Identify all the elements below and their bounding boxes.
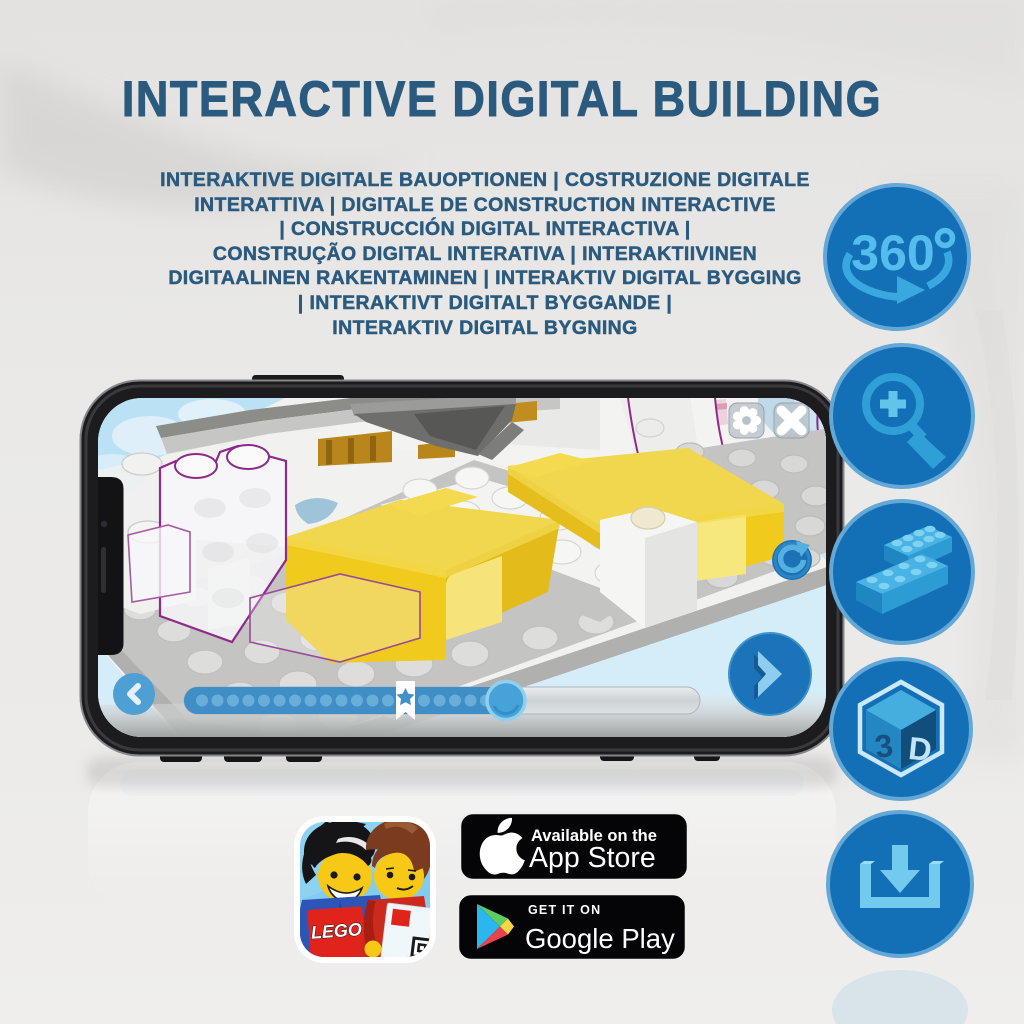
svg-text:App Store: App Store: [529, 842, 656, 874]
svg-text:360: 360: [851, 225, 934, 281]
svg-text:D: D: [907, 730, 934, 768]
svg-text:GET IT ON: GET IT ON: [528, 903, 601, 917]
svg-text:Google Play: Google Play: [525, 923, 675, 954]
svg-text:LEGO: LEGO: [310, 919, 362, 943]
